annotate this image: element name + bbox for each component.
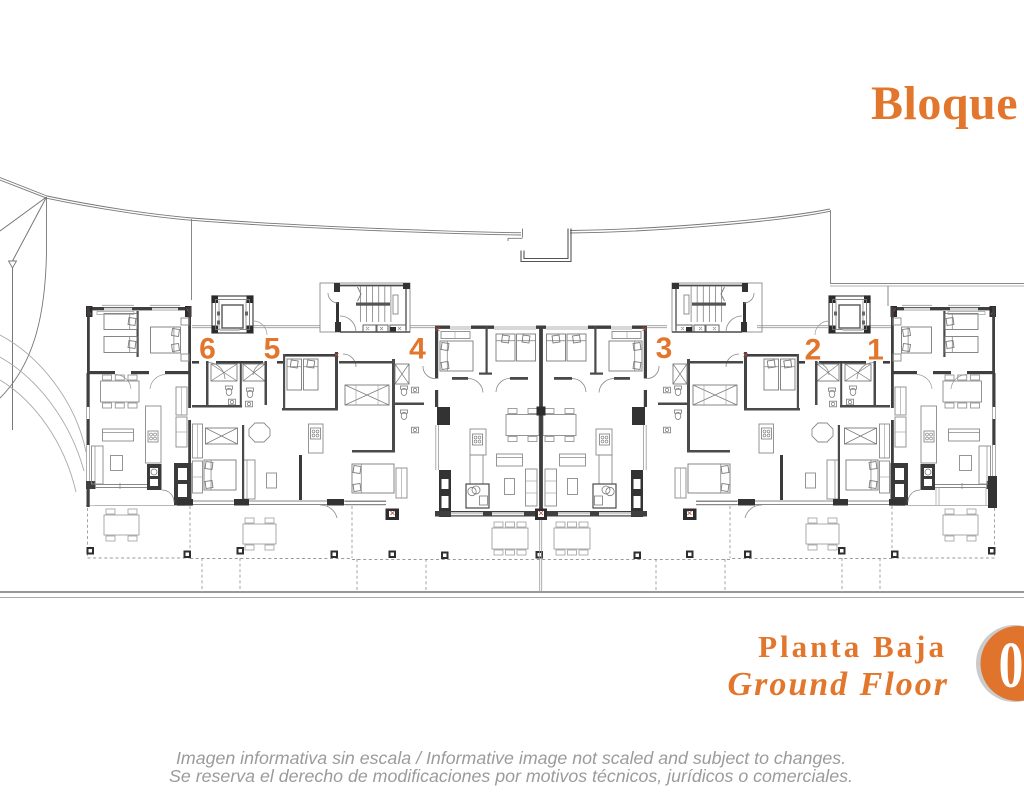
svg-text:3: 3 <box>656 332 673 365</box>
svg-text:2: 2 <box>805 334 822 367</box>
svg-text:1: 1 <box>867 334 884 367</box>
svg-text:Bloque: Bloque <box>871 77 1018 130</box>
svg-text:Imagen informativa sin escala: Imagen informativa sin escala / Informat… <box>176 748 846 768</box>
svg-text:Ground Floor: Ground Floor <box>728 666 949 703</box>
svg-text:6: 6 <box>199 333 216 366</box>
svg-text:4: 4 <box>409 333 426 366</box>
svg-text:Planta Baja: Planta Baja <box>758 629 947 664</box>
svg-text:Se reserva el derecho de modif: Se reserva el derecho de modificaciones … <box>169 766 853 786</box>
svg-text:5: 5 <box>264 333 281 366</box>
svg-text:0: 0 <box>999 628 1024 702</box>
